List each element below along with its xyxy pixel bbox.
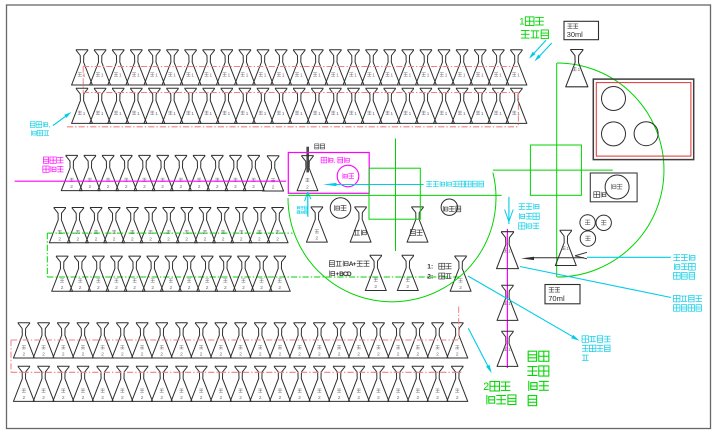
svg-text:D: D [347, 271, 352, 278]
svg-text:2: 2 [483, 381, 489, 393]
svg-text:+: + [353, 261, 357, 268]
svg-text::: : [431, 273, 433, 280]
svg-text:,: , [48, 122, 50, 129]
svg-text:30ml: 30ml [567, 30, 583, 39]
svg-text:1: 1 [508, 248, 511, 253]
svg-text:70ml: 70ml [548, 294, 565, 303]
svg-text:1: 1 [578, 67, 581, 73]
svg-text:,: , [334, 157, 336, 164]
svg-text:1: 1 [519, 17, 524, 28]
svg-text::: : [431, 264, 433, 271]
